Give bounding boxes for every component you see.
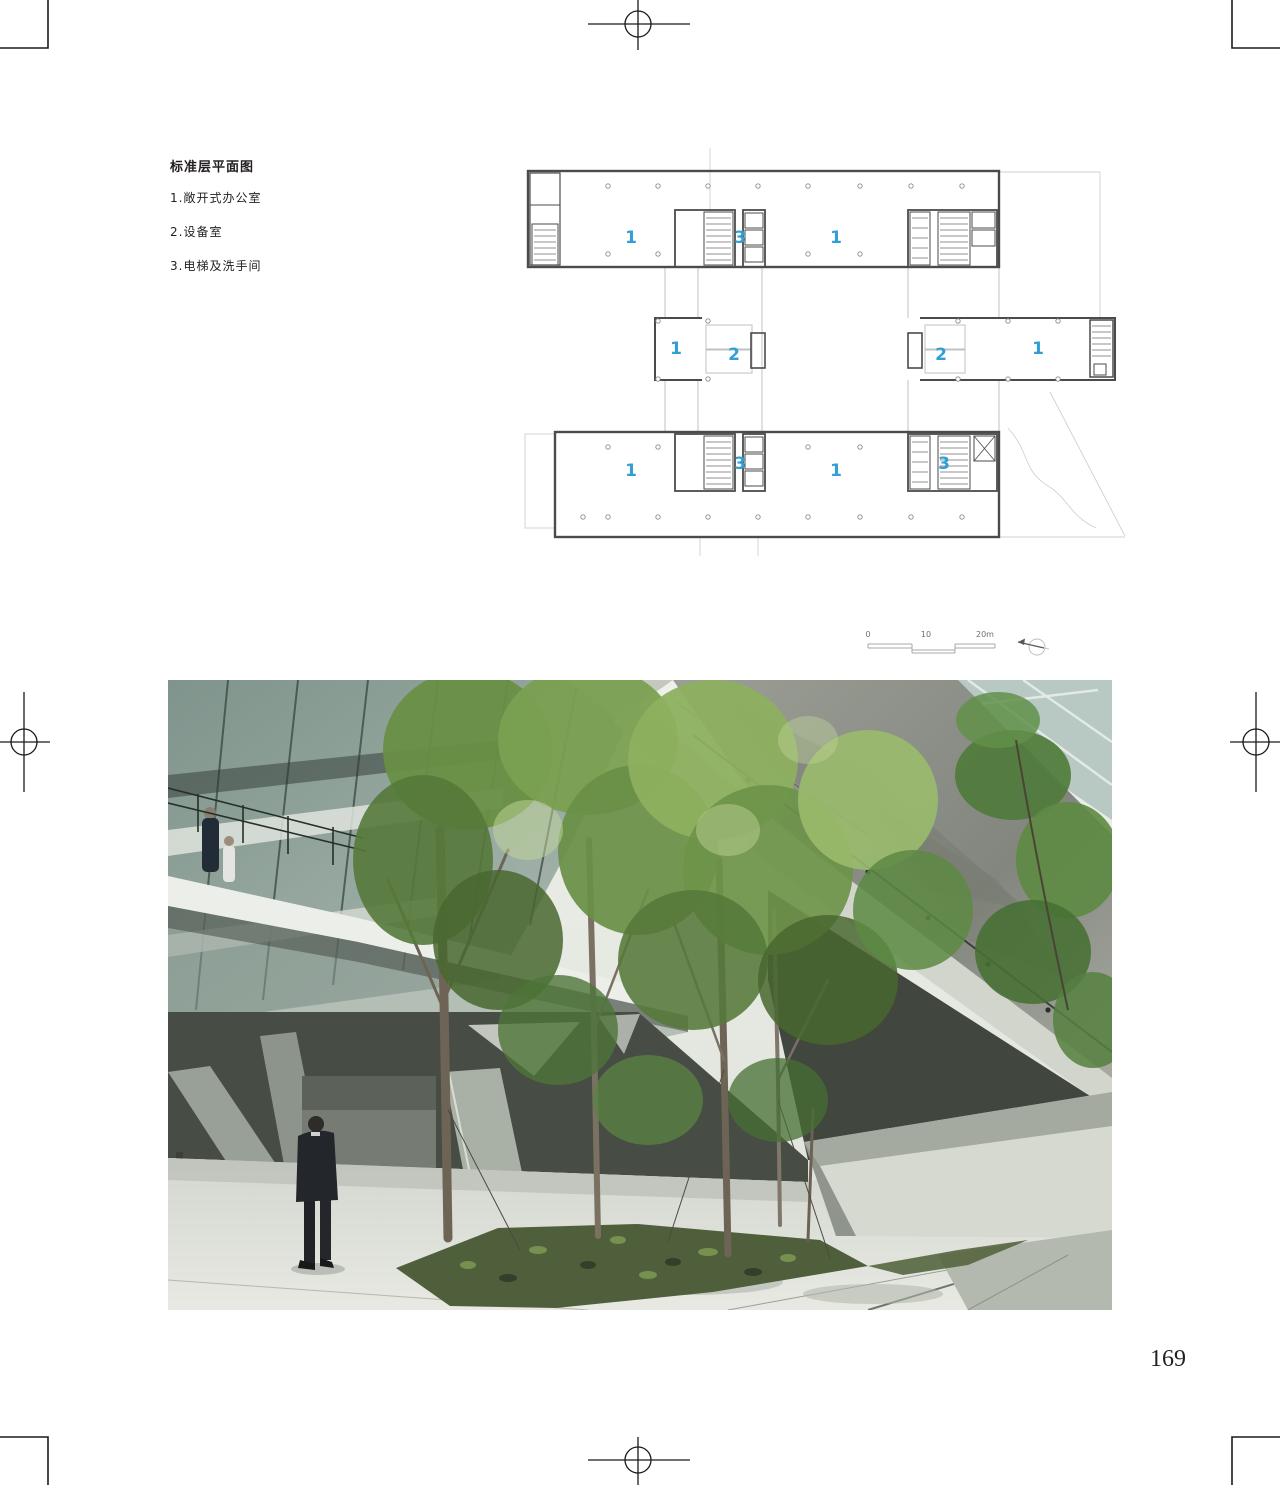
room-label: 1 <box>625 228 637 248</box>
scale-tick-0: 0 <box>865 630 870 639</box>
room-label: 1 <box>625 461 637 481</box>
column-grid-dots <box>581 184 1060 519</box>
room-label: 1 <box>830 228 842 248</box>
book-page: 标准层平面图 1.敞开式办公室 2.设备室 3.电梯及洗手间 <box>0 0 1280 1485</box>
room-label: 1 <box>670 339 682 359</box>
crop-mark-top-left <box>0 0 48 48</box>
page-number: 169 <box>1118 1346 1218 1373</box>
room-label: 2 <box>728 345 740 365</box>
scale-tick-10: 10 <box>921 630 931 639</box>
room-label: 3 <box>734 454 746 474</box>
room-label: 1 <box>830 461 842 481</box>
plan-legend: 标准层平面图 1.敞开式办公室 2.设备室 3.电梯及洗手间 <box>170 156 430 291</box>
registration-mark-bottom <box>588 1437 690 1485</box>
courtyard-photograph <box>168 680 1112 1310</box>
legend-item-equipment-room: 2.设备室 <box>170 223 430 240</box>
registration-mark-left <box>0 692 50 792</box>
room-label: 1 <box>1032 339 1044 359</box>
registration-mark-right <box>1230 692 1280 792</box>
corridor-lines <box>665 268 999 432</box>
registration-mark-top <box>588 0 690 50</box>
legend-item-open-office: 1.敞开式办公室 <box>170 189 430 206</box>
core-blocks <box>532 210 1113 491</box>
scale-tick-20m: 20m <box>976 630 994 639</box>
plan-legend-title: 标准层平面图 <box>170 156 430 175</box>
north-arrow-icon <box>1018 639 1049 656</box>
crop-mark-bottom-left <box>0 1437 48 1485</box>
room-label: 3 <box>734 228 746 248</box>
legend-item-elevator-washroom: 3.电梯及洗手间 <box>170 257 430 274</box>
standard-floor-plan-drawing: 1 3 1 1 2 2 1 1 3 1 3 0 10 20m <box>518 145 1138 665</box>
room-label: 3 <box>938 454 950 474</box>
plan-walls <box>528 171 1115 537</box>
room-label: 2 <box>935 345 947 365</box>
crop-mark-top-right <box>1232 0 1280 48</box>
scale-bar <box>868 644 995 653</box>
crop-mark-bottom-right <box>1232 1437 1280 1485</box>
stair-treads <box>534 218 1111 484</box>
